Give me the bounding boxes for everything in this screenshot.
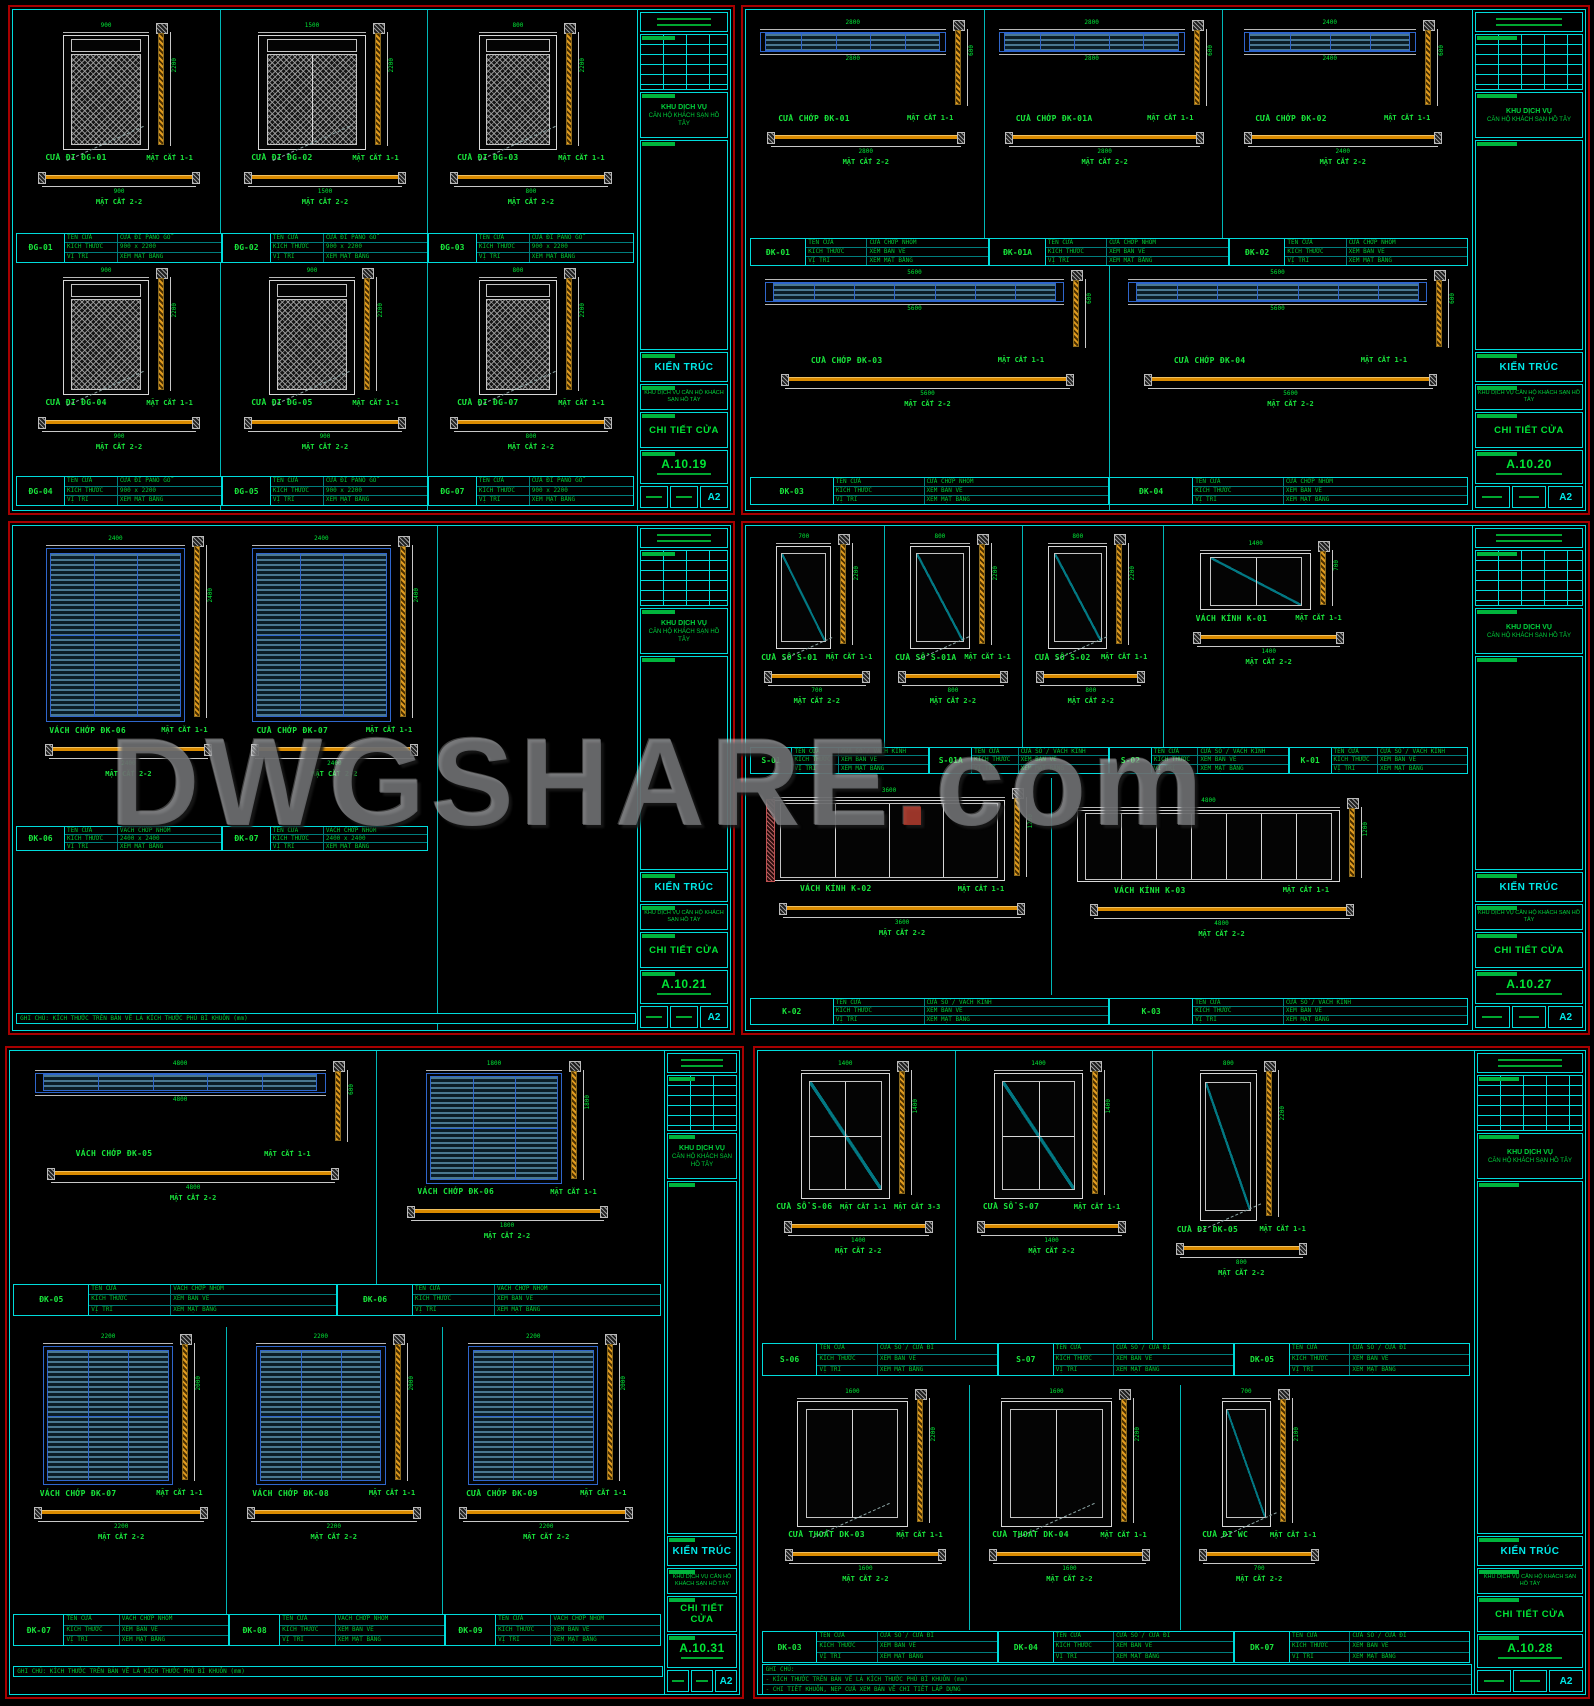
schedule-value: CỬA CHỚP NHÔM bbox=[867, 239, 988, 247]
schedule-rows: TÊN CỬACỬA SỔ / VÁCH KÍNHKÍCH THƯỚCXEM B… bbox=[834, 999, 1108, 1024]
plan-frame-bar bbox=[454, 175, 608, 179]
louvre-mullion bbox=[1370, 34, 1371, 49]
label-row: CỬA SỔ S-02MẶT CẮT 1-1 bbox=[1029, 651, 1152, 663]
schedule-label: VỊ TRÍ bbox=[817, 1653, 877, 1662]
door-tag: ĐK-05 bbox=[14, 1285, 89, 1315]
plan-section: 1400 bbox=[981, 1220, 1122, 1246]
jamb-block bbox=[45, 744, 53, 756]
vertical-section: 2000 bbox=[392, 1334, 412, 1485]
section-label: MẶT CẮT 2-2 bbox=[437, 198, 624, 209]
schedule-value: 900 x 2200 bbox=[118, 487, 221, 496]
schedule-label: KÍCH THƯỚC bbox=[1332, 756, 1378, 764]
footer-row: A2 bbox=[1477, 1670, 1583, 1692]
project-full-label: KHU DỊCH VỤ CĂN HỘ KHÁCH SẠN HỒ TÂY bbox=[642, 390, 726, 404]
jamb-block bbox=[1000, 671, 1008, 683]
width-dimension: 1600 bbox=[993, 1563, 1146, 1573]
scale-cell bbox=[640, 1006, 668, 1028]
box-tag bbox=[642, 386, 675, 390]
company-block bbox=[640, 528, 728, 548]
height-dimension: 2400 bbox=[207, 588, 214, 602]
dimension-line bbox=[1026, 797, 1027, 877]
vertical-section: 2400 bbox=[191, 536, 211, 722]
key-plan-box bbox=[640, 140, 728, 350]
louvre-mullion bbox=[854, 284, 855, 299]
company-text-bar bbox=[681, 1065, 723, 1067]
dimension-line bbox=[170, 32, 171, 146]
sheet-A.10.28: 14001400CỬA SỔ S-06MẶT CẮT 1-1MẶT CẮT 3-… bbox=[753, 1046, 1590, 1699]
date-cell bbox=[670, 1006, 698, 1028]
drawing-area: 9002200CỬA ĐI ĐG-01MẶT CẮT 1-1900MẶT CẮT… bbox=[13, 10, 638, 510]
jamb-block bbox=[1311, 1549, 1319, 1561]
schedule-strip: K-02TÊN CỬACỬA SỔ / VÁCH KÍNHKÍCH THƯỚCX… bbox=[750, 998, 1469, 1025]
schedule-rows: TÊN CỬAVÁCH CHỚP NHÔMKÍCH THƯỚCXEM BẢN V… bbox=[280, 1615, 444, 1645]
elevation-wrap: 1400 bbox=[1200, 541, 1312, 610]
door-leaf bbox=[806, 1409, 898, 1518]
divider-line bbox=[442, 1327, 443, 1642]
elevation-wrap: 700 bbox=[776, 534, 831, 650]
label-row: CỬA ĐI ĐG-03MẶT CẮT 1-1 bbox=[437, 152, 624, 164]
sheet-number-box: A.10.27 bbox=[1475, 970, 1583, 1004]
revision-table bbox=[1475, 34, 1583, 90]
door-tag: ĐK-03 bbox=[751, 478, 834, 504]
schedule-row: KÍCH THƯỚCXEM BẢN VẼ bbox=[817, 1355, 996, 1366]
frame-post bbox=[194, 546, 200, 717]
height-dimension: 600 bbox=[348, 1084, 355, 1095]
plan-frame-bar bbox=[783, 906, 1021, 910]
vertical-section: 1800 bbox=[568, 1061, 588, 1184]
schedule-label: KÍCH THƯỚC bbox=[1152, 756, 1198, 764]
elevation-row: 14001400 bbox=[966, 1061, 1138, 1199]
jamb-block bbox=[450, 172, 458, 184]
plan-section: 1400 bbox=[1197, 631, 1340, 657]
revision-table bbox=[667, 1075, 737, 1131]
label-row: CỬA CHỚP ĐK-03MẶT CẮT 1-1 bbox=[753, 354, 1101, 366]
box-tag bbox=[1477, 934, 1517, 938]
section-label: MẶT CẮT 1-1 bbox=[146, 399, 192, 407]
schedule-label: VỊ TRÍ bbox=[1054, 1653, 1114, 1662]
louvre-rail bbox=[257, 635, 385, 636]
frame-post bbox=[566, 33, 572, 145]
schedule-value: XEM MẶT BẰNG bbox=[867, 257, 988, 265]
section-label: MẶT CẮT 1-1 bbox=[146, 154, 192, 162]
label-row: CỬA SỔ S-07MẶT CẮT 1-1 bbox=[966, 1201, 1138, 1213]
divider-line bbox=[969, 1385, 970, 1629]
project-name-box: KHU DỊCH VỤCĂN HỘ KHÁCH SẠN HỒ TÂY bbox=[640, 608, 728, 654]
detail-label: CỬA ĐI ĐG-07 bbox=[457, 398, 518, 407]
jamb-block bbox=[1142, 1549, 1150, 1561]
schedule-row: KÍCH THƯỚCXEM BẢN VẼ bbox=[64, 1626, 228, 1636]
schedule-strip: S-01TÊN CỬACỬA SỔ / VÁCH KÍNHKÍCH THƯỚCX… bbox=[750, 747, 1469, 774]
box-tag bbox=[1477, 972, 1517, 976]
schedule-label: KÍCH THƯỚC bbox=[65, 835, 118, 842]
discipline-box: KIẾN TRÚC bbox=[640, 352, 728, 382]
vertical-section: 2200 bbox=[155, 23, 175, 150]
schedule-label: KÍCH THƯỚC bbox=[806, 248, 867, 256]
frame-post bbox=[1014, 798, 1020, 876]
elevation-row: 28002800600 bbox=[988, 20, 1220, 110]
schedule-value: 900 x 2200 bbox=[324, 487, 427, 496]
sheet-frame: 48004800600VÁCH CHỚP ĐK-05MẶT CẮT 1-1480… bbox=[9, 1050, 740, 1695]
label-row: CỬA ĐI WCMẶT CẮT 1-1 bbox=[1191, 1529, 1327, 1541]
divider-line bbox=[226, 1327, 227, 1642]
divider-line bbox=[1051, 778, 1052, 995]
elevation-row: 48004800600 bbox=[20, 1061, 367, 1146]
louvre-mullion bbox=[1338, 284, 1339, 299]
schedule-label: VỊ TRÍ bbox=[271, 843, 324, 850]
door-schedule-table: S-01TÊN CỬACỬA SỔ / VÁCH KÍNHKÍCH THƯỚCX… bbox=[750, 747, 930, 774]
company-text-bar bbox=[1496, 540, 1562, 542]
label-row: CỬA CHỚP ĐK-04MẶT CẮT 1-1 bbox=[1116, 354, 1464, 366]
title-block: KHU DỊCH VỤCĂN HỘ KHÁCH SẠN HỒ TÂYKIẾN T… bbox=[638, 526, 730, 1030]
width-dimension: 800 bbox=[454, 186, 608, 196]
width-dimension: 1400 bbox=[981, 1235, 1122, 1245]
louvre-mullion bbox=[1378, 284, 1379, 299]
schedule-row: VỊ TRÍXEM MẶT BẰNG bbox=[1054, 1653, 1233, 1662]
jamb-block bbox=[331, 1168, 339, 1180]
jamb-block bbox=[1244, 132, 1252, 144]
sheet-number-box: A.10.28 bbox=[1477, 1634, 1583, 1668]
schedule-value: CỬA SỔ / VÁCH KÍNH bbox=[1019, 748, 1108, 756]
plan-frame-bar bbox=[1180, 1246, 1303, 1250]
plan-frame-bar bbox=[38, 1510, 204, 1514]
project-full-label: KHU DỊCH VỤ CĂN HỘ KHÁCH SẠN HỒ TÂY bbox=[1477, 390, 1581, 404]
schedule-label: KÍCH THƯỚC bbox=[413, 1295, 495, 1304]
door-glass-leaf bbox=[1205, 1082, 1251, 1211]
schedule-value: XEM MẶT BẰNG bbox=[1019, 765, 1108, 773]
schedule-label: TÊN CỬA bbox=[792, 748, 838, 756]
scale-text-bar bbox=[1484, 1680, 1504, 1682]
width-dimension: 2400 bbox=[1244, 20, 1416, 30]
schedule-row: KÍCH THƯỚCXEM BẢN VẼ bbox=[1152, 756, 1288, 765]
schedule-value: XEM BẢN VẼ bbox=[878, 1642, 997, 1651]
door-transom bbox=[486, 284, 550, 297]
schedule-label: VỊ TRÍ bbox=[65, 843, 118, 850]
schedule-label: TÊN CỬA bbox=[1193, 999, 1284, 1007]
schedule-label: VỊ TRÍ bbox=[1046, 257, 1107, 265]
schedule-label: TÊN CỬA bbox=[280, 1615, 335, 1624]
width-dimension: 1400 bbox=[1197, 646, 1340, 656]
height-dimension: 2200 bbox=[579, 58, 586, 72]
discipline-label: KIẾN TRÚC bbox=[655, 882, 714, 893]
schedule-value: XEM MẶT BẰNG bbox=[1350, 1366, 1469, 1376]
section-label: MẶT CẮT 2-2 bbox=[445, 1533, 648, 1544]
plan-frame-bar bbox=[1248, 135, 1439, 139]
width-dimension: 900 bbox=[42, 431, 196, 441]
schedule-row: TÊN CỬACỬA ĐI PANO GỖ bbox=[65, 234, 221, 244]
notes-block: GHI CHÚ:- KÍCH THƯỚC TRÊN BẢN VẼ LÀ KÍCH… bbox=[762, 1664, 1473, 1694]
schedule-row: KÍCH THƯỚC900 x 2200 bbox=[271, 243, 427, 253]
project-line-1: KHU DỊCH VỤ bbox=[1506, 623, 1552, 632]
elevation-drawing bbox=[1200, 1073, 1257, 1221]
key-plan-box bbox=[667, 1181, 737, 1534]
frame-post bbox=[1280, 1399, 1286, 1522]
frame-post bbox=[1349, 808, 1355, 877]
drawing-title-box: CHI TIẾT CỬA bbox=[1477, 1596, 1583, 1632]
label-row: VÁCH KÍNH K-02MẶT CẮT 1-1 bbox=[757, 883, 1047, 895]
dimension-line bbox=[852, 543, 853, 646]
plan-section: 1500 bbox=[248, 171, 402, 197]
schedule-rows: TÊN CỬAVÁCH CHỚP NHÔMKÍCH THƯỚCXEM BẢN V… bbox=[496, 1615, 660, 1645]
schedule-label: VỊ TRÍ bbox=[64, 1636, 119, 1645]
frame-post bbox=[1116, 544, 1122, 645]
scale-cell bbox=[667, 1670, 689, 1692]
schedule-label: TÊN CỬA bbox=[64, 1615, 119, 1624]
dimension-line bbox=[206, 545, 207, 718]
frame-post bbox=[158, 33, 164, 145]
width-dimension: 900 bbox=[248, 431, 402, 441]
paper-size-label: A2 bbox=[708, 1012, 721, 1023]
schedule-row: KÍCH THƯỚC900 x 2200 bbox=[477, 243, 633, 253]
drawing-area: 48004800600VÁCH CHỚP ĐK-05MẶT CẮT 1-1480… bbox=[10, 1051, 665, 1694]
height-dimension: 2000 bbox=[408, 1376, 415, 1390]
schedule-label: VỊ TRÍ bbox=[834, 496, 925, 504]
drawing-title: CHI TIẾT CỬA bbox=[1495, 1609, 1565, 1620]
plan-section: 1400 bbox=[788, 1220, 929, 1246]
schedule-row: VỊ TRÍXEM MẶT BẰNG bbox=[1046, 257, 1228, 265]
section-label: MẶT CẮT 1-1 bbox=[1384, 114, 1430, 122]
height-dimension: 2400 bbox=[413, 588, 420, 602]
door-schedule-table: K-03TÊN CỬACỬA SỔ / VÁCH KÍNHKÍCH THƯỚCX… bbox=[1109, 998, 1468, 1025]
sheet-frame: 9002200CỬA ĐI ĐG-01MẶT CẮT 1-1900MẶT CẮT… bbox=[12, 9, 731, 511]
schedule-rows: TÊN CỬACỬA CHỚP NHÔMKÍCH THƯỚCXEM BẢN VẼ… bbox=[834, 478, 1108, 504]
detail-label: VÁCH CHỚP ĐK-06 bbox=[417, 1187, 494, 1196]
jamb-block bbox=[1005, 132, 1013, 144]
company-text-bar bbox=[657, 534, 710, 536]
schedule-value: XEM MẶT BẰNG bbox=[324, 496, 427, 505]
notes-block: GHI CHÚ: KÍCH THƯỚC TRÊN BẢN VẼ LÀ KÍCH … bbox=[16, 1013, 636, 1024]
section-label: MẶT CẮT 1-1 bbox=[1270, 1531, 1316, 1539]
schedule-row: KÍCH THƯỚC900 x 2200 bbox=[477, 487, 633, 497]
schedule-label: VỊ TRÍ bbox=[806, 257, 867, 265]
width-dimension: 1500 bbox=[248, 186, 402, 196]
dimension-line bbox=[1437, 29, 1438, 106]
width-dimension: 2400 bbox=[255, 758, 414, 768]
schedule-row: KÍCH THƯỚCXEM BẢN VẼ bbox=[413, 1295, 660, 1305]
schedule-label: VỊ TRÍ bbox=[1054, 1366, 1114, 1376]
schedule-row: VỊ TRÍXEM MẶT BẰNG bbox=[1054, 1366, 1233, 1376]
project-full-label: KHU DỊCH VỤ CĂN HỘ KHÁCH SẠN HỒ TÂY bbox=[642, 910, 726, 924]
height-dimension: 2200 bbox=[377, 303, 384, 317]
schedule-value: XEM MẶT BẰNG bbox=[925, 496, 1108, 504]
scale-cell bbox=[640, 486, 668, 508]
plan-section: 5600 bbox=[1148, 373, 1434, 399]
schedule-value: XEM MẶT BẰNG bbox=[551, 1636, 659, 1645]
jamb-block bbox=[410, 744, 418, 756]
plan-frame-bar bbox=[768, 674, 866, 678]
detail-group: 7002100CỬA ĐI WCMẶT CẮT 1-1700MẶT CẮT 2-… bbox=[1191, 1389, 1327, 1627]
sheet-frame: 24002400VÁCH CHỚP ĐK-06MẶT CẮT 1-12400MẶ… bbox=[12, 525, 731, 1031]
width-dimension: 2200 bbox=[463, 1521, 629, 1531]
jamb-block bbox=[1144, 374, 1152, 386]
company-text-bar bbox=[657, 24, 710, 26]
plan-frame-bar bbox=[1040, 674, 1141, 678]
schedule-label: VỊ TRÍ bbox=[1193, 1016, 1284, 1024]
elevation-row: 8002200 bbox=[437, 268, 624, 395]
elevation-wrap: 2200 bbox=[256, 1334, 386, 1485]
width-dimension: 2200 bbox=[38, 1521, 204, 1531]
schedule-value: XEM BẢN VẼ bbox=[925, 1007, 1108, 1015]
schedule-value: 900 x 2200 bbox=[118, 243, 221, 252]
elevation-wrap: 900 bbox=[63, 23, 149, 150]
height-dimension: 2200 bbox=[1279, 1106, 1286, 1120]
drawing-title-box: CHI TIẾT CỬA bbox=[667, 1596, 737, 1632]
width-dimension: 700 bbox=[1222, 1389, 1271, 1399]
vertical-section: 1200 bbox=[1011, 788, 1031, 881]
section-label: MẶT CẮT 2-2 bbox=[1116, 400, 1464, 411]
schedule-label: TÊN CỬA bbox=[65, 477, 118, 486]
plan-section: 2400 bbox=[1248, 131, 1439, 157]
door-schedule-table: ĐK-01ATÊN CỬACỬA CHỚP NHÔMKÍCH THƯỚCXEM … bbox=[989, 238, 1229, 266]
width-dimension: 800 bbox=[902, 685, 1003, 695]
vertical-section: 600 bbox=[1191, 20, 1211, 110]
schedule-label: VỊ TRÍ bbox=[1290, 1366, 1350, 1376]
schedule-value: CỬA SỔ / CỬA ĐI bbox=[1350, 1344, 1469, 1354]
width-dimension: 2400 bbox=[46, 536, 185, 546]
schedule-value: CỬA CHỚP NHÔM bbox=[1284, 478, 1467, 486]
elevation-drawing bbox=[797, 1401, 909, 1527]
drawing-area: 24002400VÁCH CHỚP ĐK-06MẶT CẮT 1-12400MẶ… bbox=[13, 526, 638, 1030]
schedule-value: XEM BẢN VẼ bbox=[1114, 1642, 1233, 1651]
sheet-number: A.10.28 bbox=[1507, 1641, 1553, 1655]
door-glass-leaf bbox=[1054, 553, 1102, 643]
project-line-1: KHU DỊCH VỤ bbox=[661, 619, 707, 628]
schedule-label: TÊN CỬA bbox=[1290, 1344, 1350, 1354]
door-transom bbox=[267, 39, 357, 52]
width-dimension: 1400 bbox=[788, 1235, 929, 1245]
schedule-row: VỊ TRÍXEM MẶT BẰNG bbox=[1285, 257, 1467, 265]
louvre-mullion bbox=[905, 34, 906, 49]
dimension-line bbox=[170, 277, 171, 391]
door-tag: ĐG-02 bbox=[223, 234, 271, 262]
paper-size-label: A2 bbox=[720, 1676, 733, 1687]
table-header-tag bbox=[1477, 36, 1517, 40]
jamb-block bbox=[1090, 904, 1098, 916]
width-dimension: 2800 bbox=[760, 20, 946, 30]
discipline-box: KIẾN TRÚC bbox=[1477, 1536, 1583, 1566]
elevation-drawing bbox=[1077, 810, 1339, 882]
schedule-label: KÍCH THƯỚC bbox=[1193, 487, 1284, 495]
vertical-section: 600 bbox=[1070, 270, 1090, 352]
label-row: CỬA CHỚP ĐK-09MẶT CẮT 1-1 bbox=[445, 1487, 648, 1499]
detail-group: 9002200CỬA ĐI ĐG-05MẶT CẮT 1-1900MẶT CẮT… bbox=[231, 268, 418, 473]
schedule-strip: ĐK-01TÊN CỬACỬA CHỚP NHÔMKÍCH THƯỚCXEM B… bbox=[750, 238, 1469, 266]
door-schedule-table: ĐK-06TÊN CỬAVÁCH CHỚP NHÔMKÍCH THƯỚC2400… bbox=[16, 826, 222, 851]
schedule-row: VỊ TRÍXEM MẶT BẰNG bbox=[1193, 496, 1467, 504]
schedule-row: VỊ TRÍXEM MẶT BẰNG bbox=[1290, 1366, 1469, 1376]
jamb-block bbox=[604, 417, 612, 429]
width-dimension: 3600 bbox=[783, 917, 1021, 927]
door-tag: ĐK-07 bbox=[223, 827, 271, 850]
label-row: VÁCH CHỚP ĐK-05MẶT CẮT 1-1 bbox=[20, 1148, 367, 1160]
cad-drawing-canvas: DWGSHARE.com 9002200CỬA ĐI ĐG-01MẶT CẮT … bbox=[0, 0, 1594, 1706]
width-dimension: 1600 bbox=[797, 1389, 909, 1399]
detail-label: CỬA ĐI ĐG-02 bbox=[251, 153, 312, 162]
schedule-value: CỬA ĐI PANO GỖ bbox=[530, 234, 633, 243]
width-dimension: 900 bbox=[63, 268, 149, 278]
door-leaf-divider bbox=[852, 1410, 853, 1517]
dimension-line bbox=[407, 1343, 408, 1481]
plan-section: 4800 bbox=[1094, 903, 1350, 929]
schedule-label: TÊN CỬA bbox=[271, 827, 324, 834]
box-tag bbox=[642, 142, 675, 146]
schedule-row: VỊ TRÍXEM MẶT BẰNG bbox=[792, 765, 928, 773]
height-dimension: 2000 bbox=[195, 1376, 202, 1390]
width-dimension: 800 bbox=[1180, 1257, 1303, 1267]
schedule-label: KÍCH THƯỚC bbox=[477, 243, 530, 252]
section-label: MẶT CẮT 2-2 bbox=[753, 400, 1101, 411]
height-dimension: 2000 bbox=[620, 1376, 627, 1390]
glass-mullion bbox=[1226, 814, 1227, 879]
glass-mullion bbox=[1156, 814, 1157, 879]
louvre-mullion bbox=[1177, 284, 1178, 299]
elevation-row: 28002800600 bbox=[750, 20, 982, 110]
schedule-value: XEM BẢN VẼ bbox=[1114, 1355, 1233, 1365]
height-dimension: 1800 bbox=[584, 1095, 591, 1109]
label-row: CỬA SỔ S-01AMẶT CẮT 1-1 bbox=[891, 651, 1014, 663]
vertical-section: 2200 bbox=[1113, 534, 1133, 650]
discipline-box: KIẾN TRÚC bbox=[640, 872, 728, 902]
schedule-value: XEM BẢN VẼ bbox=[171, 1295, 336, 1304]
section-label: MẶT CẮT 1-1 bbox=[964, 653, 1010, 661]
door-schedule-table: ĐK-07TÊN CỬAVÁCH CHỚP NHÔMKÍCH THƯỚCXEM … bbox=[13, 1614, 229, 1646]
schedule-row: VỊ TRÍXEM MẶT BẰNG bbox=[817, 1366, 996, 1376]
notes-block: GHI CHÚ: KÍCH THƯỚC TRÊN BẢN VẼ LÀ KÍCH … bbox=[13, 1666, 662, 1677]
door-transom bbox=[71, 284, 142, 297]
elevation-drawing bbox=[773, 800, 1005, 881]
jamb-block bbox=[1346, 904, 1354, 916]
plan-section: 1600 bbox=[789, 1548, 942, 1574]
glass-mullion bbox=[835, 804, 836, 877]
schedule-value: XEM BẢN VẼ bbox=[867, 248, 988, 256]
project-name-box: KHU DỊCH VỤCĂN HỘ KHÁCH SẠN HỒ TÂY bbox=[1477, 1133, 1583, 1179]
schedule-row: VỊ TRÍXEM MẶT BẰNG bbox=[806, 257, 988, 265]
schedule-value: XEM BẢN VẼ bbox=[495, 1295, 660, 1304]
vertical-section: 2000 bbox=[604, 1334, 624, 1485]
louvre-mullion bbox=[1298, 284, 1299, 299]
section-label: MẶT CẮT 2-2 bbox=[20, 1533, 223, 1544]
schedule-value: XEM MẶT BẰNG bbox=[839, 765, 928, 773]
box-tag bbox=[1477, 658, 1517, 662]
louvre-mullion bbox=[836, 34, 837, 49]
footer-row: A2 bbox=[667, 1670, 737, 1692]
schedule-label: VỊ TRÍ bbox=[271, 496, 324, 505]
schedule-rows: TÊN CỬACỬA SỔ / VÁCH KÍNHKÍCH THƯỚCXEM B… bbox=[1152, 748, 1288, 773]
box-tag bbox=[669, 1538, 695, 1542]
louvre-leaf bbox=[260, 1350, 381, 1480]
schedule-value: XEM BẢN VẼ bbox=[1350, 1355, 1469, 1365]
dimension-line bbox=[1128, 543, 1129, 646]
vertical-section: 2200 bbox=[1118, 1389, 1138, 1527]
frame-post bbox=[1121, 1399, 1127, 1522]
frame-post bbox=[1425, 30, 1431, 105]
door-schedule-table: ĐK-03TÊN CỬACỬA CHỚP NHÔMKÍCH THƯỚCXEM B… bbox=[750, 477, 1109, 505]
jamb-block bbox=[1193, 632, 1201, 644]
scale-cell bbox=[1477, 1670, 1511, 1692]
dimension-line bbox=[929, 1398, 930, 1523]
door-schedule-table: ĐG-01TÊN CỬACỬA ĐI PANO GỖKÍCH THƯỚC900 … bbox=[16, 233, 222, 263]
paper-size-cell: A2 bbox=[700, 486, 728, 508]
dimension-line bbox=[967, 29, 968, 106]
schedule-row: KÍCH THƯỚCXEM BẢN VẼ bbox=[1193, 487, 1467, 496]
door-tag: S-02 bbox=[1110, 748, 1152, 773]
door-tag: DK-07 bbox=[1235, 1632, 1290, 1662]
schedule-rows: TÊN CỬACỬA SỔ / CỬA ĐIKÍCH THƯỚCXEM BẢN … bbox=[817, 1344, 996, 1375]
plan-section: 900 bbox=[42, 171, 196, 197]
section-label: MẶT CẮT 2-2 bbox=[1191, 1575, 1327, 1586]
drawing-title: CHI TIẾT CỬA bbox=[1494, 425, 1564, 436]
width-dimension: 5600 bbox=[765, 270, 1065, 280]
door-tag: ĐK-07 bbox=[14, 1615, 64, 1645]
